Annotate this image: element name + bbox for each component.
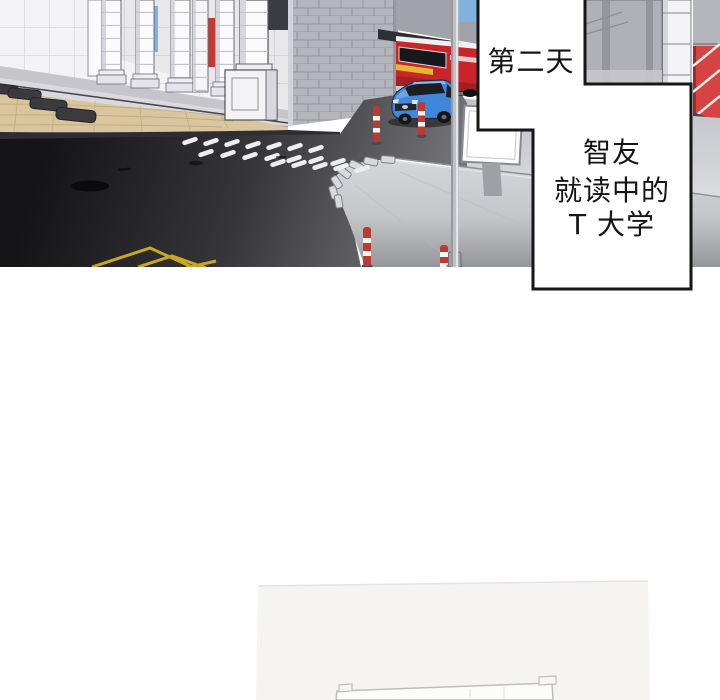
column [193, 0, 208, 92]
corner-pilaster [88, 0, 103, 76]
comic-page: 第二天 智友 就读中的 T 大学 [0, 0, 720, 700]
bollard [440, 245, 448, 268]
caption-location-line1: 智友 [583, 136, 641, 169]
manhole [71, 181, 109, 192]
panel-illustration: 第二天 智友 就读中的 T 大学 [0, 0, 720, 700]
bollard [372, 106, 382, 145]
caption-location-line2: 就读中的 [554, 174, 670, 207]
sky-gap [456, 0, 478, 22]
caption-location-line3: T 大学 [568, 208, 655, 241]
sign-post [482, 163, 502, 196]
caption-day: 第二天 [487, 45, 574, 78]
car-logo [402, 105, 408, 109]
bollard [362, 227, 373, 268]
gate-top-right [693, 0, 720, 46]
next-panel-hint [256, 581, 650, 700]
